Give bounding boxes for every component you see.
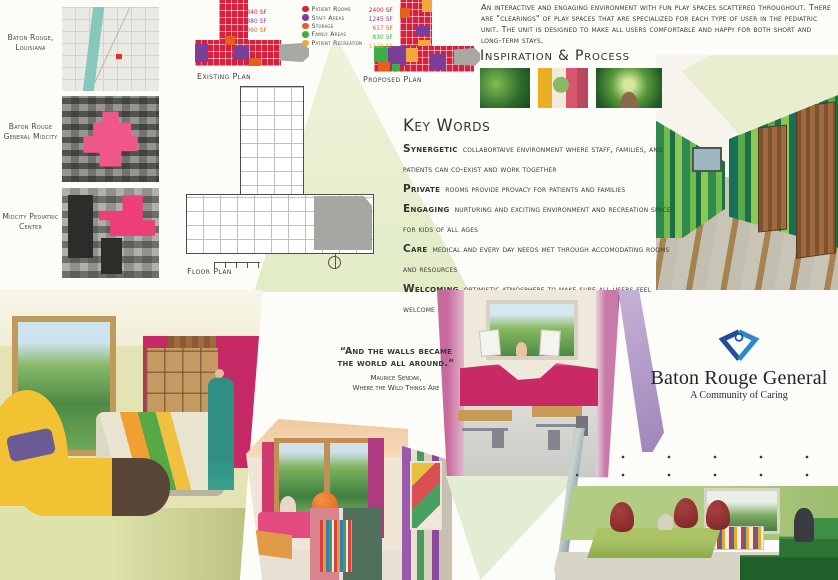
corridor-end-window	[692, 147, 721, 172]
chair	[548, 430, 560, 450]
legend-swatch	[302, 14, 309, 21]
quote-source: Where the Wild Things Are	[312, 383, 480, 393]
definition: medical and every day needs met through …	[403, 244, 669, 274]
family-area-patch	[392, 64, 400, 71]
storage-patch	[400, 8, 410, 18]
north-arrow	[328, 256, 341, 269]
proposed-plan-areas: 2400 SF 1245 SF 617 SF 830 SF 1128 SF	[366, 7, 393, 52]
legend-label: Family Areas	[312, 30, 347, 38]
wood-door	[758, 124, 787, 232]
term: Care	[403, 243, 428, 255]
floor	[0, 508, 268, 580]
bookshelf	[310, 508, 382, 580]
street-map-thumbnail	[62, 7, 159, 91]
existing-plan-label: Existing Plan	[197, 72, 251, 81]
poster-nook-rendering	[402, 431, 452, 580]
intro-paragraph: An interactive and engaging environment …	[481, 2, 833, 46]
staff-area-patch	[195, 44, 208, 62]
decor-shape	[101, 238, 122, 274]
baton-rouge-general-logo: Baton Rouge General A Community of Carin…	[640, 326, 838, 401]
recreation-patch	[422, 0, 432, 12]
teen-lounge-rendering	[554, 448, 838, 580]
entry-block	[454, 48, 480, 66]
recreation-patch	[406, 48, 418, 62]
area-value: 2400 SF	[366, 7, 393, 16]
entry-block	[314, 196, 372, 250]
logo-name: Baton Rouge General	[640, 368, 838, 388]
storage-patch	[249, 58, 261, 66]
staff-area-patch	[430, 54, 446, 70]
decor-shape	[68, 195, 93, 258]
term: Engaging	[403, 203, 450, 215]
quote-line: “And the walls became	[312, 346, 480, 358]
area-value: 880 SF	[240, 18, 267, 27]
legend-item: Family Areas	[302, 30, 362, 38]
map-label-pediatric-center: Midcity Pediatric Center	[2, 212, 59, 233]
easel	[479, 329, 501, 357]
key-word: Private rooms provide provacy for patien…	[403, 177, 673, 197]
reader-figure	[658, 514, 673, 530]
kids-table	[532, 406, 582, 417]
chaise-seat	[18, 458, 170, 516]
storage-patch	[378, 62, 390, 71]
area-value: 3840 SF	[240, 9, 267, 18]
inspiration-heading: Inspiration & Process	[480, 48, 630, 64]
key-word: Synergetic collabortaive environment whe…	[403, 137, 673, 177]
plan-legend: Patient Rooms Staff Areas Storage Family…	[302, 5, 362, 47]
logo-tagline: A Community of Caring	[640, 390, 838, 401]
reading-nook-rendering	[246, 414, 408, 580]
legend-item: Storage	[302, 22, 362, 30]
bean-bag	[610, 502, 634, 532]
wood-door	[796, 102, 836, 260]
proposed-plan-label: Proposed Plan	[363, 75, 422, 84]
forest-path-photo	[596, 68, 662, 108]
child-figure	[516, 342, 527, 357]
aerial-photo-hospital-highlighted	[62, 96, 159, 182]
key-word: Care medical and every day needs met thr…	[403, 237, 673, 277]
river-shape	[83, 7, 105, 91]
pediatric-unit-presentation-board: Baton Rouge, Louisiana Baton Rouge Gener…	[0, 0, 838, 580]
nurse-figure	[208, 378, 234, 490]
key-words-heading: Key Words	[403, 116, 673, 135]
map-label-baton-rouge: Baton Rouge, Louisiana	[2, 33, 59, 54]
ceiling	[554, 448, 838, 490]
key-word: Engaging nurturing and exciting environm…	[403, 197, 673, 237]
quote-block: “And the walls became the world all arou…	[312, 346, 480, 393]
area-value: 617 SF	[366, 25, 393, 34]
legend-swatch	[302, 6, 309, 13]
area-value: 1128 SF	[366, 43, 393, 52]
plan-wing	[240, 86, 304, 200]
key-words-section: Key Words Synergetic collabortaive envir…	[403, 116, 673, 317]
floor-plan-drawing	[186, 86, 416, 268]
legend-label: Staff Areas	[312, 14, 345, 22]
area-value: 830 SF	[366, 34, 393, 43]
patient-room-rendering	[0, 290, 268, 580]
storage-patch	[225, 36, 235, 45]
area-value: 1245 SF	[366, 16, 393, 25]
legend-label: Patient Recreation	[312, 39, 363, 47]
aerial-photo-pediatric-center-highlighted	[62, 188, 159, 278]
quote-line: the world all around.”	[312, 358, 480, 370]
bean-bag	[674, 498, 698, 528]
hospital-footprint-highlight	[83, 111, 137, 166]
legend-label: Storage	[312, 22, 334, 30]
kids-table	[458, 410, 512, 421]
term: Private	[403, 183, 440, 195]
existing-plan-areas: 3840 SF 880 SF 360 SF	[240, 9, 267, 36]
legend-item: Patient Recreation	[302, 39, 362, 47]
colorful-room-sketch	[538, 68, 588, 108]
books	[320, 520, 352, 572]
jungle-foliage-photo	[480, 68, 530, 108]
chair	[492, 428, 504, 448]
legend-label: Patient Rooms	[312, 5, 351, 13]
staff-area-patch	[416, 26, 430, 36]
orange-bench	[246, 529, 292, 559]
quote-attribution: Maurice Sendak, Where the Wild Things Ar…	[312, 373, 480, 392]
tree-corridor-sketch	[656, 55, 838, 290]
legend-item: Staff Areas	[302, 13, 362, 21]
term: Synergetic	[403, 143, 458, 155]
bean-bag	[706, 500, 730, 530]
area-value: 360 SF	[240, 27, 267, 36]
legend-item: Patient Rooms	[302, 5, 362, 13]
teen-figure	[794, 508, 814, 542]
definition: rooms provide provacy for patients and f…	[445, 184, 625, 194]
jungle-poster	[410, 461, 442, 531]
green-platform	[587, 528, 721, 558]
staff-area-patch	[233, 46, 249, 60]
quote-author: Maurice Sendak,	[312, 373, 480, 383]
floor-plan-label: Floor Plan	[187, 267, 232, 276]
heart-ribbon-icon	[717, 326, 761, 364]
map-label-general-midcity: Baton Rouge General Midcity	[2, 122, 59, 143]
legend-swatch	[302, 23, 309, 30]
legend-swatch	[302, 40, 309, 47]
easel	[539, 329, 561, 356]
legend-swatch	[302, 31, 309, 38]
site-marker	[116, 54, 122, 59]
